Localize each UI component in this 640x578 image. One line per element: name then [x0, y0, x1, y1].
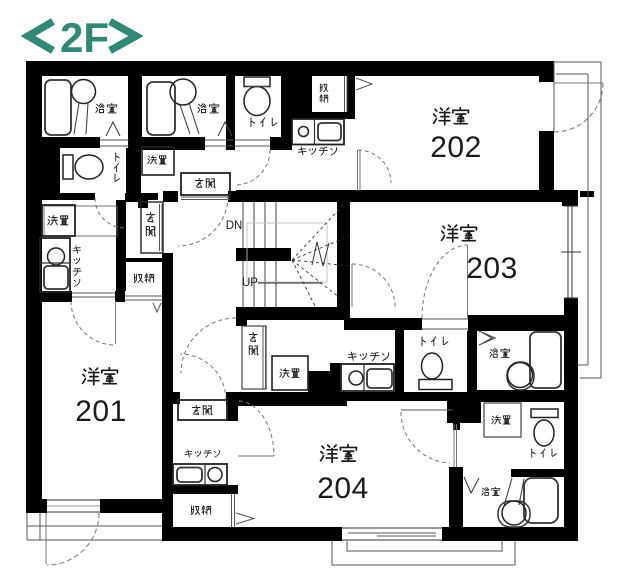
svg-text:202: 202 — [430, 131, 482, 164]
svg-text:2F: 2F — [60, 14, 109, 61]
svg-text:204: 204 — [317, 472, 369, 505]
svg-text:201: 201 — [75, 395, 127, 428]
svg-text:DN: DN — [226, 220, 243, 232]
svg-text:203: 203 — [466, 252, 518, 285]
svg-text:UP: UP — [242, 277, 258, 289]
